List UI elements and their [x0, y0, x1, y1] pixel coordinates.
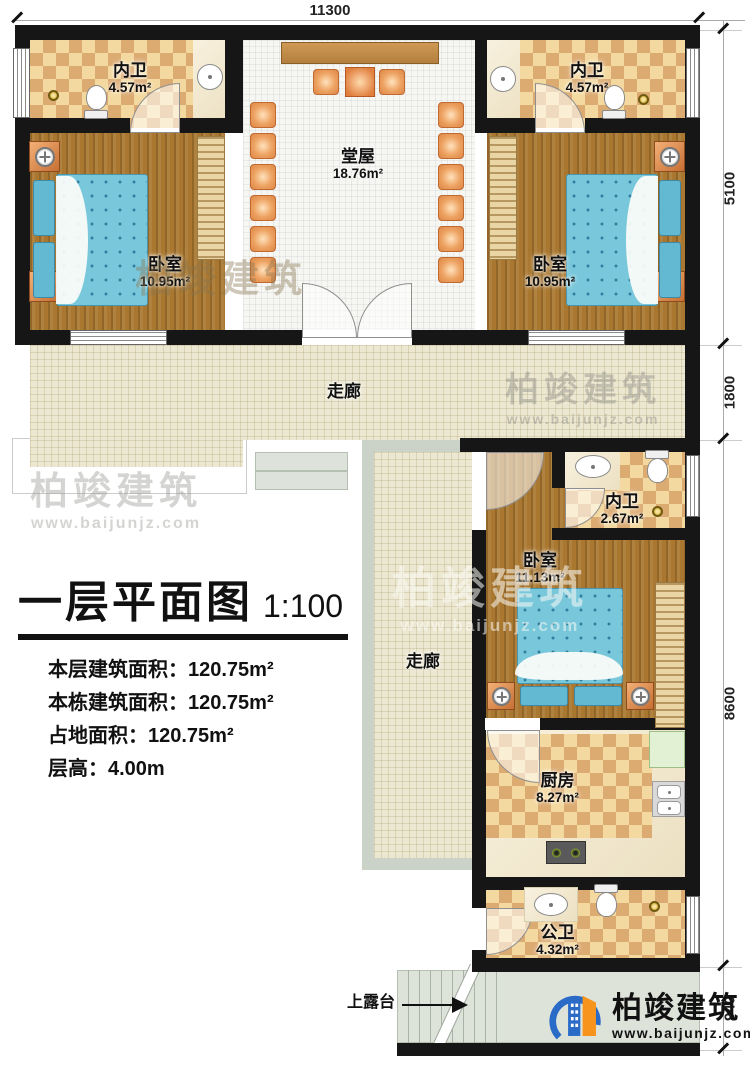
window-bath-public: [686, 896, 700, 954]
company-logo: 柏竣建筑 www.baijunjz.com: [548, 988, 750, 1046]
info-line-building-area: 本栋建筑面积：120.75m²: [48, 687, 378, 720]
hall-chair: [250, 195, 276, 221]
bed-pillow: [33, 242, 55, 298]
sink-bath-mid: [575, 455, 611, 478]
wardrobe-bed-tr: [489, 136, 517, 260]
company-logo-text: 柏竣建筑: [612, 993, 750, 1025]
room-label-bed-mid: 卧室 11.13m²: [495, 552, 585, 586]
info-line-land-area: 占地面积：120.75m²: [48, 720, 378, 753]
wall-bath-tr-bottom-b: [585, 118, 685, 133]
sink-bath-tl: [197, 64, 223, 90]
wardrobe-bed-tl: [197, 136, 225, 260]
hall-chair: [438, 102, 464, 128]
bed-sheet: [626, 176, 658, 304]
title-block: 一层平面图 1:100 本层建筑面积：120.75m² 本栋建筑面积：120.7…: [18, 566, 378, 786]
wall-bath-mid-left: [552, 452, 565, 488]
window-left-wall: [13, 48, 30, 118]
hall-chair: [438, 257, 464, 283]
info-line-floor-height: 层高：4.00m: [48, 753, 378, 786]
room-label-bed-tl: 卧室 10.95m²: [125, 256, 205, 290]
drawing-scale: 1:100: [263, 588, 343, 625]
wall-bath-tl-bottom-a: [30, 118, 130, 133]
wall-bath-tr-bottom-a: [487, 118, 535, 133]
floor-drain-icon: [638, 94, 649, 105]
room-label-hall: 堂屋 18.76m²: [318, 148, 398, 182]
corridor-h-floor-ext: [30, 440, 243, 467]
dimension-right-1800: 1800: [722, 363, 739, 423]
hall-table: [345, 67, 375, 97]
nightstand: [654, 141, 685, 172]
bed-pillow: [574, 686, 622, 706]
nightstand: [29, 141, 60, 172]
sink-bath-tr: [490, 66, 516, 92]
hall-chair: [438, 164, 464, 190]
window-bath-mid: [686, 455, 700, 517]
corridor-step: [255, 471, 348, 490]
hall-chair: [438, 226, 464, 252]
bed-sheet: [515, 652, 623, 680]
dimension-top: 11300: [285, 2, 375, 19]
company-logo-icon: [548, 988, 606, 1046]
terrace-arrow-head: [452, 997, 468, 1013]
dimension-right-8600: 8600: [722, 674, 739, 734]
hall-chair: [250, 257, 276, 283]
fridge: [649, 731, 685, 768]
stove: [546, 841, 586, 864]
room-label-bed-tr: 卧室 10.95m²: [510, 256, 590, 290]
wall-hall-bath-tr: [475, 25, 487, 133]
hall-sideboard: [281, 42, 439, 64]
hall-chair: [250, 102, 276, 128]
room-label-bath-mid: 内卫 2.67m²: [590, 493, 654, 527]
wall-bath-tl-bottom-b: [180, 118, 225, 133]
wall-bath-public-left-a: [472, 890, 486, 908]
wall-top: [15, 25, 700, 40]
bed-pillow: [33, 180, 55, 236]
room-label-corridor-v: 走廊: [393, 653, 453, 672]
company-logo-url: www.baijunjz.com: [612, 1025, 750, 1041]
top-dimension-line: [15, 20, 745, 21]
kitchen-sink: [652, 781, 685, 817]
hall-chair: [250, 226, 276, 252]
bed-pillow: [659, 242, 681, 298]
page-title: 一层平面图: [18, 566, 253, 630]
wardrobe-bed-mid: [655, 582, 685, 728]
hall-chair: [438, 133, 464, 159]
floor-drain-icon: [649, 901, 660, 912]
sink-bath-public: [534, 893, 568, 916]
dim-tick: [11, 11, 23, 23]
window-bed-tr: [528, 330, 625, 345]
wall-bath-mid-bottom: [552, 528, 685, 540]
nightstand: [487, 682, 515, 710]
wall-bed-kitchen-a: [472, 718, 485, 730]
room-label-terrace: 上露台: [342, 994, 400, 1012]
wall-bath-tl-hall: [225, 25, 243, 133]
room-label-corridor-h: 走廊: [314, 383, 374, 402]
floor-drain-icon: [48, 90, 59, 101]
corridor-step: [255, 452, 348, 471]
room-label-bath-public: 公卫 4.32m²: [520, 924, 595, 958]
toilet-bath-mid: [645, 450, 669, 483]
window-bed-tl: [70, 330, 167, 345]
terrace-arrow-line: [402, 1004, 454, 1006]
title-underline: [18, 634, 348, 640]
wall-bath-public-bottom: [472, 958, 700, 972]
hall-chair: [313, 69, 339, 95]
wall-kitchen-left: [472, 730, 486, 877]
hall-chair: [379, 69, 405, 95]
hall-chair: [250, 164, 276, 190]
room-label-bath-tl: 内卫 4.57m²: [95, 62, 165, 96]
floor-plan: 11300 5100 1800 8600 940: [0, 0, 750, 1066]
wall-kitchen-bath-public: [472, 877, 700, 890]
hall-chair: [250, 133, 276, 159]
hall-chair: [438, 195, 464, 221]
dim-tick: [693, 11, 705, 23]
window-right-wall-top: [686, 48, 700, 118]
bed-pillow: [659, 180, 681, 236]
toilet-bath-public: [594, 884, 618, 917]
nightstand: [626, 682, 654, 710]
info-line-floor-area: 本层建筑面积：120.75m²: [48, 654, 378, 687]
bed-pillow: [520, 686, 568, 706]
room-label-bath-tr: 内卫 4.57m²: [552, 62, 622, 96]
room-label-kitchen: 厨房 8.27m²: [520, 772, 595, 806]
dimension-right-5100: 5100: [722, 159, 739, 219]
wall-midblock-left: [472, 530, 486, 718]
